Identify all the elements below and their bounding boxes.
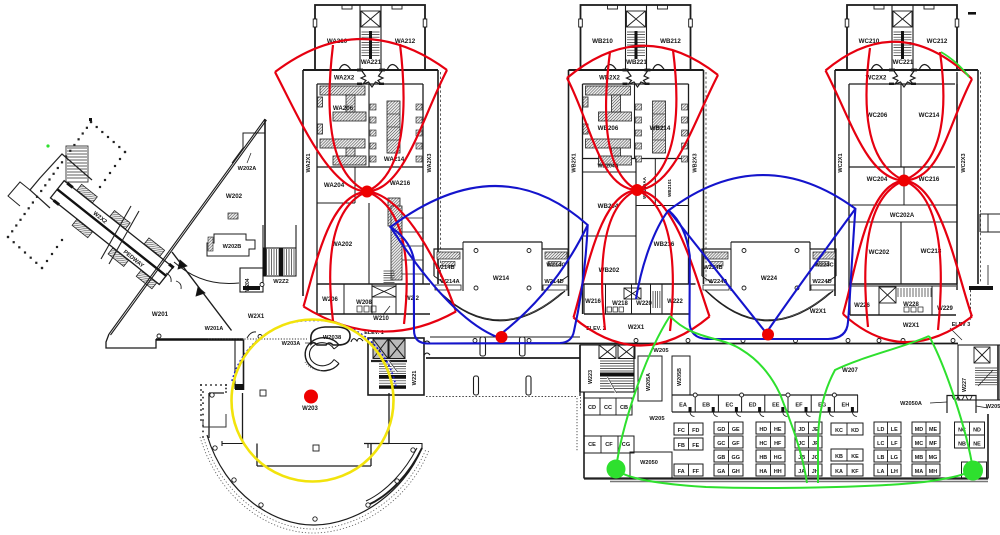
svg-text:KB: KB	[835, 454, 843, 460]
svg-text:HG: HG	[774, 455, 782, 461]
svg-text:W205: W205	[649, 416, 665, 422]
svg-text:MD: MD	[915, 427, 923, 433]
svg-text:GB: GB	[717, 455, 725, 461]
svg-text:W2X1: W2X1	[628, 325, 645, 331]
svg-text:CC: CC	[604, 405, 612, 411]
svg-text:EB: EB	[702, 403, 710, 409]
svg-text:FE: FE	[692, 443, 699, 449]
svg-text:W222: W222	[667, 299, 683, 305]
svg-text:WC2X1: WC2X1	[838, 153, 844, 172]
svg-text:W227: W227	[962, 378, 968, 392]
svg-text:W203: W203	[302, 406, 318, 412]
svg-text:W205A: W205A	[646, 373, 652, 391]
svg-text:CF: CF	[605, 442, 613, 448]
svg-text:GG: GG	[732, 455, 740, 461]
svg-text:NB: NB	[958, 442, 966, 448]
svg-text:WB221: WB221	[626, 59, 647, 66]
svg-text:CB: CB	[620, 405, 628, 411]
svg-text:WC2X3: WC2X3	[961, 153, 967, 172]
svg-text:W2050A: W2050A	[900, 401, 922, 407]
svg-text:W208: W208	[356, 300, 372, 306]
svg-text:WC221: WC221	[893, 59, 914, 66]
svg-text:WB212: WB212	[660, 38, 681, 45]
svg-text:NE: NE	[973, 442, 981, 448]
svg-text:W202: W202	[226, 193, 243, 200]
svg-text:GE: GE	[732, 427, 740, 433]
svg-text:WA2X3: WA2X3	[427, 154, 433, 173]
svg-text:LH: LH	[891, 469, 898, 475]
svg-text:WC212: WC212	[927, 38, 948, 45]
svg-text:W216: W216	[585, 299, 601, 305]
svg-text:ED: ED	[749, 403, 757, 409]
svg-text:EC: EC	[726, 403, 734, 409]
svg-text:LD: LD	[877, 427, 884, 433]
svg-text:CG: CG	[622, 442, 630, 448]
svg-text:W224: W224	[761, 275, 778, 282]
svg-text:W203A: W203A	[282, 341, 301, 347]
svg-text:MC: MC	[915, 441, 923, 447]
svg-text:WC216: WC216	[919, 176, 940, 183]
svg-text:LA: LA	[877, 469, 884, 475]
svg-text:W218: W218	[612, 301, 628, 307]
svg-text:FA: FA	[678, 469, 685, 475]
svg-text:WA206: WA206	[333, 105, 354, 112]
svg-text:WC214: WC214	[919, 112, 940, 119]
svg-text:FF: FF	[692, 469, 699, 475]
svg-text:ME: ME	[929, 427, 937, 433]
svg-text:W2X1: W2X1	[248, 314, 265, 320]
svg-text:W220: W220	[636, 301, 652, 307]
svg-text:W214: W214	[493, 275, 510, 282]
svg-text:HC: HC	[759, 441, 767, 447]
svg-text:CE: CE	[588, 442, 596, 448]
svg-text:ND: ND	[973, 428, 981, 434]
svg-text:WB214: WB214	[650, 125, 671, 132]
svg-text:EF: EF	[795, 403, 803, 409]
svg-text:WB2X1: WB2X1	[572, 153, 578, 172]
svg-text:MH: MH	[929, 469, 937, 475]
svg-text:W2050: W2050	[640, 460, 658, 466]
svg-text:W2Z2: W2Z2	[273, 279, 288, 285]
svg-text:HD: HD	[759, 427, 767, 433]
svg-text:GC: GC	[717, 441, 725, 447]
svg-text:EA: EA	[679, 403, 687, 409]
svg-text:JD: JD	[798, 427, 805, 433]
svg-text:EH: EH	[842, 403, 850, 409]
svg-text:W224C: W224C	[814, 263, 834, 269]
svg-text:MF: MF	[929, 441, 937, 447]
svg-text:KA: KA	[835, 469, 843, 475]
svg-text:WA216: WA216	[390, 180, 411, 187]
svg-text:W202B: W202B	[223, 244, 242, 250]
svg-text:W226: W226	[854, 303, 870, 309]
svg-text:W224D: W224D	[812, 279, 831, 285]
svg-text:WA221: WA221	[361, 59, 382, 66]
svg-text:KF: KF	[851, 469, 859, 475]
svg-text:LG: LG	[891, 455, 899, 461]
svg-text:W210: W210	[373, 316, 389, 322]
svg-text:W202A: W202A	[238, 166, 257, 172]
svg-text:KE: KE	[851, 454, 859, 460]
svg-text:GF: GF	[732, 441, 740, 447]
svg-text:W223: W223	[588, 370, 594, 384]
svg-text:WB2X2: WB2X2	[599, 76, 620, 82]
svg-text:HA: HA	[759, 469, 767, 475]
svg-text:WC204: WC204	[867, 176, 888, 183]
svg-text:WA2X1: WA2X1	[306, 154, 312, 173]
svg-text:WB210: WB210	[592, 38, 613, 45]
svg-text:W205: W205	[986, 404, 1000, 410]
svg-text:WC202: WC202	[869, 249, 890, 256]
svg-text:WA2X2: WA2X2	[334, 76, 355, 82]
svg-text:LE: LE	[891, 427, 898, 433]
svg-text:HH: HH	[774, 469, 782, 475]
svg-text:WB2X3: WB2X3	[693, 153, 699, 172]
svg-text:HF: HF	[774, 441, 782, 447]
svg-text:MG: MG	[929, 455, 938, 461]
svg-text:LB: LB	[877, 455, 884, 461]
svg-text:KD: KD	[851, 428, 859, 434]
svg-text:W2X1: W2X1	[810, 309, 827, 315]
svg-text:W205B: W205B	[677, 368, 683, 386]
svg-text:WC202A: WC202A	[890, 213, 915, 219]
svg-text:KC: KC	[835, 428, 843, 434]
svg-text:FC: FC	[678, 428, 685, 434]
svg-text:LF: LF	[891, 441, 898, 447]
svg-text:GH: GH	[732, 469, 740, 475]
svg-text:GD: GD	[717, 427, 725, 433]
svg-text:W201A: W201A	[205, 326, 224, 332]
svg-text:W207: W207	[842, 368, 858, 374]
svg-text:WA204: WA204	[324, 182, 345, 189]
svg-text:WA202: WA202	[332, 241, 353, 248]
svg-text:FB: FB	[678, 443, 685, 449]
svg-text:WB2101: WB2101	[667, 179, 672, 197]
svg-text:HB: HB	[759, 455, 767, 461]
svg-text:GA: GA	[717, 469, 725, 475]
svg-text:HE: HE	[774, 427, 782, 433]
svg-text:WC206: WC206	[867, 112, 888, 119]
svg-text:EE: EE	[772, 403, 780, 409]
svg-text:LC: LC	[877, 441, 884, 447]
svg-text:W2X1: W2X1	[903, 323, 920, 329]
svg-text:MA: MA	[915, 469, 923, 475]
svg-text:W221: W221	[412, 371, 418, 386]
svg-text:W201: W201	[152, 311, 169, 318]
svg-text:WC2X2: WC2X2	[866, 76, 887, 82]
svg-text:WB216: WB216	[654, 241, 675, 248]
svg-text:CD: CD	[588, 405, 596, 411]
svg-text:MB: MB	[915, 455, 923, 461]
svg-text:W205: W205	[653, 348, 669, 354]
svg-text:FD: FD	[692, 428, 699, 434]
